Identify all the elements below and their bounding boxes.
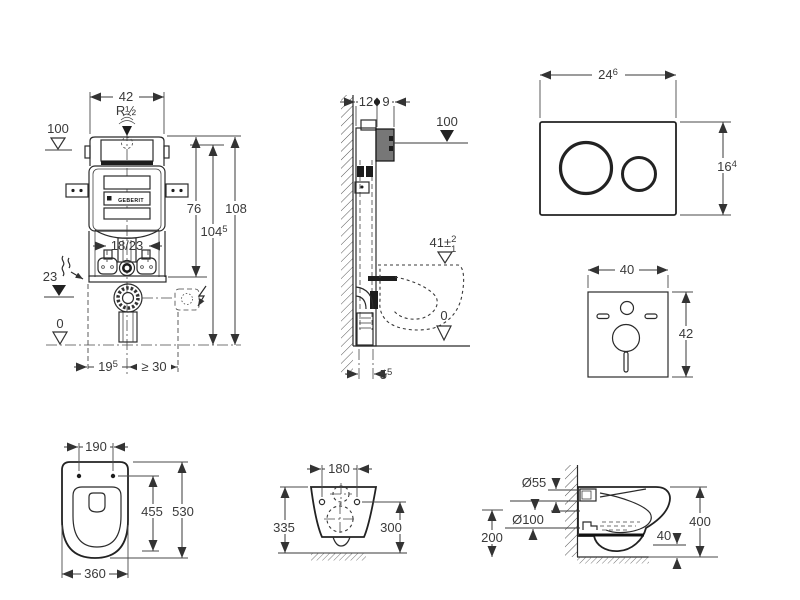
flush-button-small — [623, 158, 656, 191]
svg-text:100: 100 — [436, 114, 458, 129]
view-wc-plan: 190 455 530 360 — [62, 439, 197, 581]
dim-wall-offset: 55 — [380, 367, 393, 382]
view-frame-front: GEBERIT — [43, 89, 250, 374]
dim-height-108: 108 — [225, 201, 247, 216]
electrical-box — [142, 286, 206, 310]
lightning-bolt-icon — [198, 286, 206, 306]
odour-icon — [62, 256, 83, 279]
geberit-logo-text: GEBERIT — [118, 198, 144, 204]
outlet-bend — [114, 284, 142, 342]
svg-text:23: 23 — [43, 269, 57, 284]
view-sound-mat: 40 42 — [588, 262, 698, 377]
dim-outlet-height-200: 200 — [481, 530, 503, 545]
svg-text:100: 100 — [47, 121, 69, 136]
water-level-hatch — [600, 522, 640, 530]
dim-depth-9: 9 — [382, 94, 389, 109]
view-wc-rear: 180 335 300 — [270, 461, 407, 561]
dim-clearance-40: 40 — [657, 528, 671, 543]
geberit-logo-mark — [107, 196, 112, 201]
protection-box — [376, 129, 394, 161]
datum-seat-41: 41±21 — [430, 234, 457, 263]
view-frame-side: 12 9 100 41±21 0 55 — [340, 94, 470, 382]
flush-button-large — [561, 143, 612, 194]
dim-depth-530: 530 — [172, 504, 194, 519]
dim-height-335: 335 — [273, 520, 295, 535]
pan-mounting-bar — [368, 276, 397, 281]
datum-side-0: 0 — [437, 308, 451, 340]
dim-height-400: 400 — [689, 514, 711, 529]
dim-outlet-pipe: Ø100 — [512, 512, 544, 527]
svg-text:0: 0 — [56, 316, 63, 331]
view-wc-side: Ø55 Ø100 200 400 40 — [478, 465, 718, 569]
dim-hole-spacing-190: 190 — [85, 439, 107, 454]
drawing-canvas: GEBERIT — [0, 0, 800, 600]
dim-height-300: 300 — [380, 520, 402, 535]
datum-23: 23 — [43, 269, 74, 297]
dim-mat-height: 42 — [679, 326, 693, 341]
dim-height-76: 76 — [187, 201, 201, 216]
svg-text:0: 0 — [440, 308, 447, 323]
dim-hole-spacing-180: 180 — [328, 461, 350, 476]
datum-0: 0 — [53, 316, 67, 344]
datum-100: 100 — [45, 121, 72, 150]
dim-width-360: 360 — [84, 566, 106, 581]
wall-hatch — [341, 95, 353, 375]
technical-drawing-sheet: GEBERIT — [0, 0, 800, 600]
dim-pipe-offset: 18/23 — [111, 238, 144, 253]
dim-mat-width: 40 — [620, 262, 634, 277]
dim-depth-12: 12 — [359, 94, 373, 109]
datum-side-100: 100 — [394, 114, 468, 143]
dim-depth-455: 455 — [141, 504, 163, 519]
label-supply-r12: R½ — [116, 103, 136, 118]
dim-flush-pipe: Ø55 — [522, 475, 547, 490]
view-flush-plate: 246 164 — [540, 67, 744, 215]
wc-pan-outline-dashed — [378, 265, 464, 330]
dim-width-42: 42 — [119, 89, 133, 104]
floor-hatch-right — [577, 557, 649, 564]
dim-min-30: ≥ 30 — [141, 359, 166, 374]
floor-hatch — [311, 554, 366, 561]
